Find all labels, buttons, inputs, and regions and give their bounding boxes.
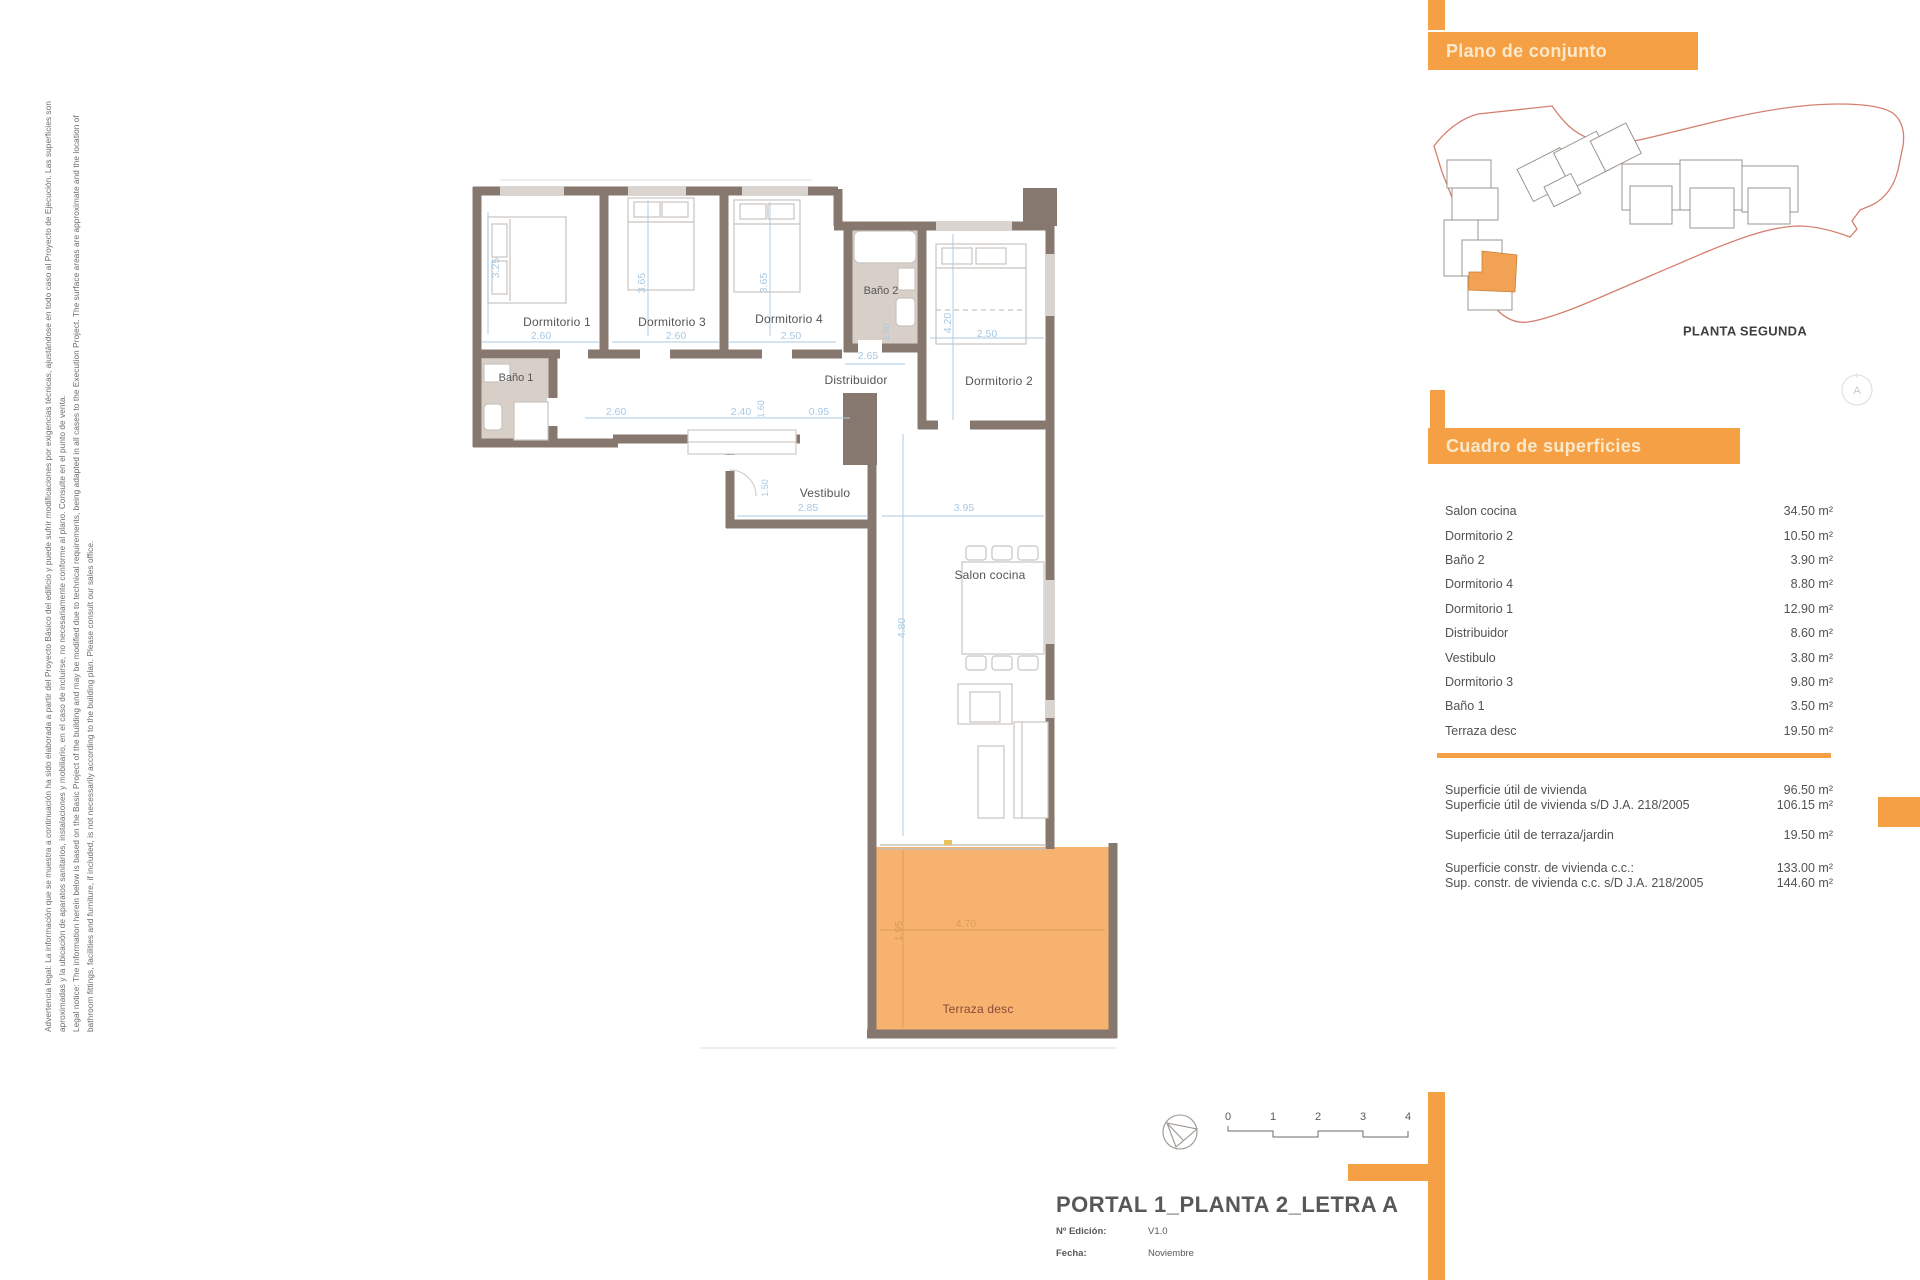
surface-row-label: Salon cocina [1445, 504, 1517, 518]
dim-label: 2.50 [977, 328, 997, 340]
summary-row-label: Sup. constr. de vivienda c.c. s/D J.A. 2… [1445, 876, 1703, 891]
room-label-distribuidor: Distribuidor [824, 373, 887, 387]
summary-row-value: 144.60 m² [1777, 876, 1833, 891]
surface-row: Baño 2 3.90 m² [1445, 548, 1833, 572]
deco-bar-surfaces [1430, 390, 1445, 428]
summary-row-label: Superficie útil de terraza/jardin [1445, 828, 1614, 843]
surface-row: Dormitorio 3 9.80 m² [1445, 670, 1833, 694]
surface-row-label: Baño 1 [1445, 699, 1485, 713]
surface-row: Terraza desc 19.50 m² [1445, 719, 1833, 743]
dim-label: 2.85 [798, 502, 818, 514]
dim-label: 2.60 [666, 330, 686, 342]
surface-row-label: Dormitorio 1 [1445, 602, 1513, 616]
sheet-title: PORTAL 1_PLANTA 2_LETRA A [1056, 1192, 1399, 1218]
dim-label: 1.60 [881, 323, 891, 341]
surfaces-table: Salon cocina 34.50 m² Dormitorio 2 10.50… [1445, 499, 1833, 743]
date-label: Fecha: [1056, 1248, 1087, 1259]
deco-bar-right [1878, 797, 1920, 827]
room-label-salon-cocina: Salon cocina [954, 568, 1025, 582]
dim-label: 1.50 [760, 479, 770, 497]
summary-row-value: 133.00 m² [1777, 861, 1833, 876]
dim-label: 3.65 [636, 273, 648, 293]
dim-label: 2.60 [531, 330, 551, 342]
legal-line: aproximadas y la ubicación de aparatos s… [56, 20, 70, 1032]
room-label-dormitorio-3: Dormitorio 3 [638, 315, 706, 329]
dim-label: 2.65 [858, 350, 878, 362]
surface-row-value: 9.80 m² [1791, 675, 1833, 689]
dim-label: 1.60 [756, 400, 766, 418]
surface-row-value: 3.80 m² [1791, 651, 1833, 665]
site-panel-header: Plano de conjunto [1428, 32, 1698, 70]
surface-row: Distribuidor 8.60 m² [1445, 621, 1833, 645]
room-label-vestibulo: Vestibulo [800, 486, 851, 500]
room-label-terraza: Terraza desc [942, 1002, 1013, 1016]
surface-row-label: Vestibulo [1445, 651, 1496, 665]
wall-corner [1023, 188, 1057, 226]
surface-row-label: Baño 2 [1445, 553, 1485, 567]
surface-row-value: 34.50 m² [1784, 504, 1833, 518]
summary-divider [1437, 753, 1831, 758]
summary-row: Superficie útil de terraza/jardin 19.50 … [1445, 828, 1833, 843]
dim-label: 4.70 [956, 918, 976, 930]
north-arrow-icon [1163, 1115, 1197, 1149]
edition-label: Nº Edición: [1056, 1226, 1106, 1237]
surface-row: Dormitorio 4 8.80 m² [1445, 572, 1833, 596]
floor-plan-drawing [473, 180, 1117, 1048]
summary-row-label: Superficie constr. de vivienda c.c.: [1445, 861, 1634, 876]
room-label-dormitorio-1: Dormitorio 1 [523, 315, 591, 329]
dim-label: 2.40 [731, 406, 751, 418]
surfaces-panel-header-label: Cuadro de superficies [1446, 436, 1641, 457]
summary-row-value: 96.50 m² [1784, 783, 1833, 798]
site-panel-header-label: Plano de conjunto [1446, 41, 1607, 62]
surface-row: Baño 1 3.50 m² [1445, 694, 1833, 718]
legal-line: Legal notice: The information herein bel… [70, 20, 84, 1032]
room-label-bano-1: Baño 1 [499, 372, 534, 384]
dim-label: 1.95 [893, 921, 905, 941]
summary-row-value: 19.50 m² [1784, 828, 1833, 843]
scale-tick: 3 [1360, 1111, 1366, 1123]
surface-row-value: 12.90 m² [1784, 602, 1833, 616]
plan-sheet-page: { "accent_color": "#f5a045", "terrace_co… [0, 0, 1920, 1280]
scale-bar-line [1228, 1126, 1408, 1137]
surface-row: Dormitorio 1 12.90 m² [1445, 597, 1833, 621]
summary-row-value: 106.15 m² [1777, 798, 1833, 813]
site-plan-drawing [1434, 104, 1904, 405]
deco-bar-bottom-horizontal [1348, 1164, 1428, 1181]
surface-row-label: Dormitorio 2 [1445, 529, 1513, 543]
scale-tick: 2 [1315, 1111, 1321, 1123]
dim-label: 2.60 [606, 406, 626, 418]
surface-row-value: 19.50 m² [1784, 724, 1833, 738]
wall-mass [843, 393, 877, 465]
summary-row: Superficie constr. de vivienda c.c.: 133… [1445, 861, 1833, 876]
date-value: Noviembre [1148, 1248, 1194, 1259]
deco-bar-bottom-vertical [1428, 1092, 1445, 1280]
surfaces-panel-header: Cuadro de superficies [1428, 428, 1740, 464]
edition-value: V1.0 [1148, 1226, 1168, 1237]
surface-row-label: Dormitorio 3 [1445, 675, 1513, 689]
compass-letter: A [1853, 385, 1860, 397]
dim-label: 2.50 [781, 330, 801, 342]
surface-row: Salon cocina 34.50 m² [1445, 499, 1833, 523]
scale-tick: 0 [1225, 1111, 1231, 1123]
surface-row-value: 3.90 m² [1791, 553, 1833, 567]
room-label-dormitorio-4: Dormitorio 4 [755, 312, 823, 326]
surface-row: Vestibulo 3.80 m² [1445, 645, 1833, 669]
dim-label: 3.65 [758, 273, 770, 293]
legal-line: Advertencia legal: La información que se… [42, 20, 56, 1032]
legal-line: bathroom fittings, facilities and furnit… [84, 20, 98, 1032]
dim-label: 3.95 [954, 502, 974, 514]
dim-label: 4.20 [942, 313, 954, 333]
surface-row-value: 8.60 m² [1791, 626, 1833, 640]
room-label-dormitorio-2: Dormitorio 2 [965, 374, 1033, 388]
surface-row-value: 3.50 m² [1791, 699, 1833, 713]
summary-row-label: Superficie útil de vivienda s/D J.A. 218… [1445, 798, 1690, 813]
dim-label: 0.95 [809, 406, 829, 418]
surfaces-summary: Superficie útil de vivienda 96.50 m² Sup… [1445, 783, 1833, 891]
scale-tick: 1 [1270, 1111, 1276, 1123]
planta-segunda-caption: PLANTA SEGUNDA [1683, 324, 1807, 339]
legal-disclaimer: Advertencia legal: La información que se… [42, 20, 98, 1032]
surface-row-value: 8.80 m² [1791, 577, 1833, 591]
door-marker [944, 840, 952, 845]
summary-row: Sup. constr. de vivienda c.c. s/D J.A. 2… [1445, 876, 1833, 891]
summary-row-label: Superficie útil de vivienda [1445, 783, 1587, 798]
dim-label: 3.25 [490, 258, 502, 278]
surface-row-label: Dormitorio 4 [1445, 577, 1513, 591]
surface-row-value: 10.50 m² [1784, 529, 1833, 543]
scale-tick: 4 [1405, 1111, 1411, 1123]
summary-row: Superficie útil de vivienda 96.50 m² [1445, 783, 1833, 798]
summary-row: Superficie útil de vivienda s/D J.A. 218… [1445, 798, 1833, 813]
dim-label: 4.80 [896, 618, 908, 638]
room-label-bano-2: Baño 2 [864, 285, 899, 297]
building-cluster-right [1622, 160, 1798, 228]
surface-row-label: Distribuidor [1445, 626, 1508, 640]
deco-bar-top [1428, 0, 1445, 30]
surface-row-label: Terraza desc [1445, 724, 1517, 738]
surface-row: Dormitorio 2 10.50 m² [1445, 523, 1833, 547]
